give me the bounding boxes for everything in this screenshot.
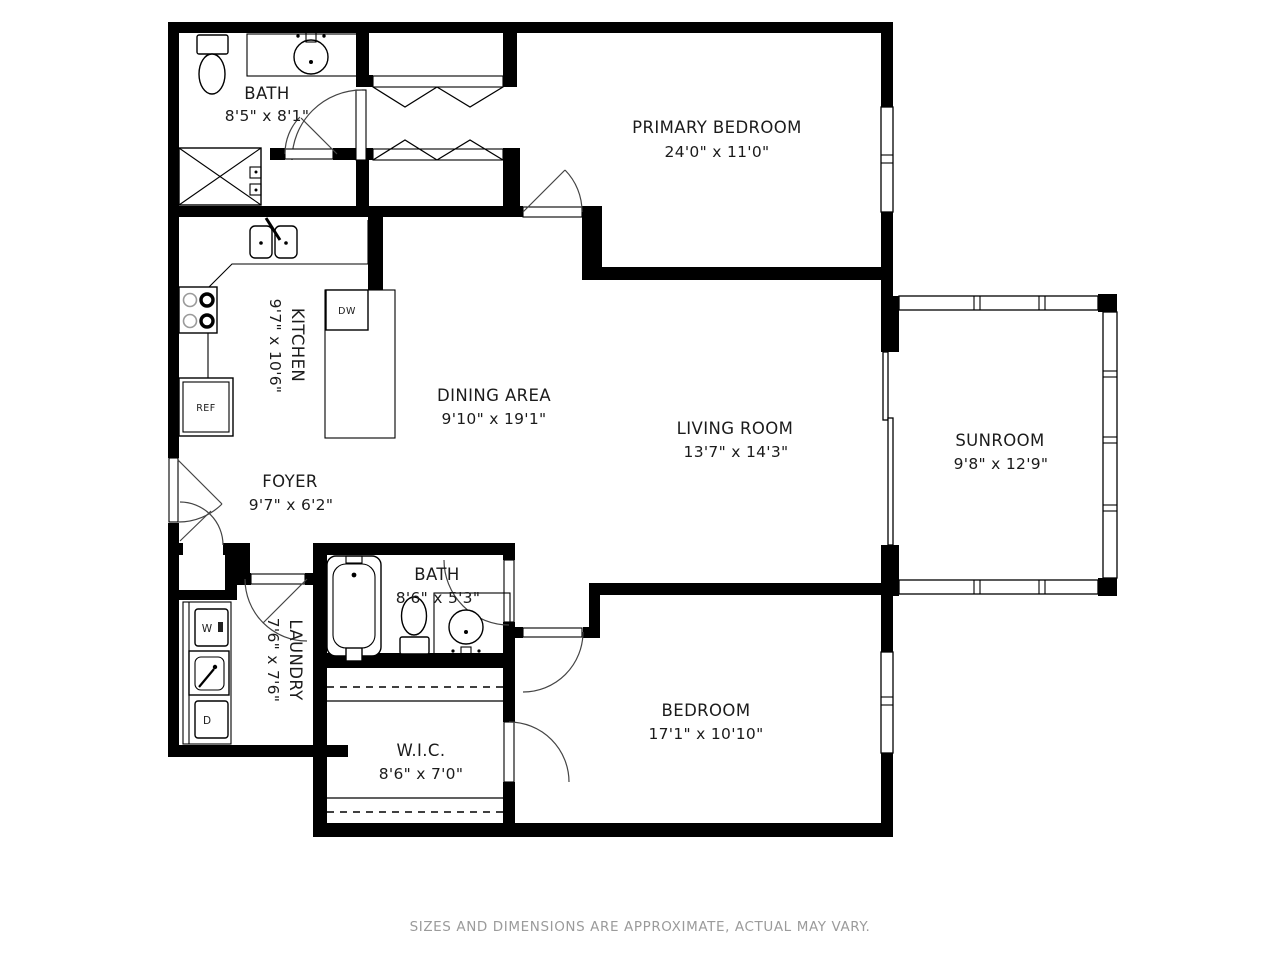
wall-segment <box>881 22 893 107</box>
wall-segment <box>503 638 515 722</box>
wall-segment <box>583 627 600 638</box>
wall-segment <box>503 543 515 560</box>
refrigerator: REF <box>179 378 233 436</box>
room-dims: 9'10" x 19'1" <box>442 410 547 428</box>
wall-segment <box>313 543 515 555</box>
sunroom-window-band-right <box>1103 312 1117 578</box>
shower <box>179 148 261 205</box>
washer-label: W <box>202 623 213 635</box>
room-name: BATH <box>414 565 459 584</box>
room-name: W.I.C. <box>397 741 446 760</box>
kitchen-sink <box>250 218 297 258</box>
floor-plan-page: DW REF <box>0 0 1280 960</box>
room-name: LIVING ROOM <box>677 419 794 438</box>
room-name: SUNROOM <box>955 431 1044 450</box>
room-label-wic: W.I.C. 8'6" x 7'0" <box>379 741 464 783</box>
wall-segment <box>168 590 237 600</box>
wall-segment <box>313 543 327 835</box>
stove <box>179 287 217 333</box>
washer: W <box>195 609 228 646</box>
bedroom-window <box>881 652 893 753</box>
bedroom-door <box>523 628 583 692</box>
primary-bedroom-door <box>523 170 582 217</box>
room-label-foyer: FOYER 9'7" x 6'2" <box>249 472 334 514</box>
room-dims: 13'7" x 14'3" <box>684 443 789 461</box>
room-dims: 9'7" x 10'6" <box>266 299 284 394</box>
toilet-icon <box>197 35 228 94</box>
wall-segment <box>503 33 517 87</box>
wall-segment <box>168 22 179 458</box>
primary-bedroom-window <box>881 107 893 212</box>
sliding-door <box>883 352 893 545</box>
room-label-bedroom: BEDROOM 17'1" x 10'10" <box>648 701 763 743</box>
room-dims: 8'6" x 7'0" <box>379 765 464 783</box>
room-name: DINING AREA <box>437 386 551 405</box>
room-label-kitchen: KITCHEN 9'7" x 10'6" <box>266 299 307 394</box>
wic-door <box>504 722 569 782</box>
wall-segment <box>368 217 383 290</box>
room-name: LAUNDRY <box>286 619 305 701</box>
room-name: PRIMARY BEDROOM <box>632 118 802 137</box>
wall-segment <box>313 823 893 837</box>
room-dims: 8'6" x 5'3" <box>396 589 481 607</box>
room-label-dining-area: DINING AREA 9'10" x 19'1" <box>437 386 551 428</box>
bifold-doors-top <box>373 87 503 107</box>
kitchen-fixtures: DW REF <box>179 218 395 438</box>
wall-segment <box>881 578 899 596</box>
dryer: D <box>195 701 228 738</box>
wall-segment <box>592 267 893 280</box>
wall-segment <box>270 148 285 160</box>
room-dims: 9'7" x 6'2" <box>249 496 334 514</box>
closet-track <box>373 149 503 160</box>
vanity-sink <box>247 29 357 76</box>
room-name: KITCHEN <box>288 308 307 382</box>
hall-closets <box>373 76 503 160</box>
wall-segment <box>1098 294 1117 312</box>
room-label-living-room: LIVING ROOM 13'7" x 14'3" <box>677 419 794 461</box>
room-name: BATH <box>244 84 289 103</box>
disclaimer-text: SIZES AND DIMENSIONS ARE APPROXIMATE, AC… <box>410 919 871 935</box>
room-label-sunroom: SUNROOM 9'8" x 12'9" <box>954 431 1049 473</box>
room-label-laundry: LAUNDRY 7'6" x 7'6" <box>264 618 305 703</box>
walls <box>168 22 1117 837</box>
room-dims: 17'1" x 10'10" <box>648 725 763 743</box>
entry-door <box>169 458 222 522</box>
wall-segment <box>168 22 893 33</box>
room-name: BEDROOM <box>662 701 751 720</box>
wall-segment <box>1098 578 1117 596</box>
refrigerator-label: REF <box>196 403 216 414</box>
wall-segment <box>503 782 515 823</box>
room-label-primary-bedroom: PRIMARY BEDROOM 24'0" x 11'0" <box>632 118 802 161</box>
room-label-bath-1: BATH 8'5" x 8'1" <box>225 84 310 125</box>
dryer-label: D <box>203 715 211 727</box>
wall-segment <box>243 573 251 585</box>
wall-segment <box>881 592 893 652</box>
wall-segment <box>168 523 179 757</box>
windows <box>881 107 1117 753</box>
laundry-sink <box>189 651 229 695</box>
room-dims: 8'5" x 8'1" <box>225 107 310 125</box>
wall-segment <box>168 206 523 217</box>
room-label-bath-2: BATH 8'6" x 5'3" <box>396 565 481 607</box>
room-labels: BATH 8'5" x 8'1" PRIMARY BEDROOM 24'0" x… <box>225 84 1049 783</box>
wall-segment <box>881 753 893 837</box>
wall-segment <box>881 296 899 352</box>
wall-segment <box>356 75 373 87</box>
laundry-fixtures: W D <box>183 602 231 744</box>
sunroom-window-band-bottom <box>899 580 1098 594</box>
dishwasher-label: DW <box>338 306 356 317</box>
floor-plan: DW REF <box>0 0 1280 960</box>
closet-track <box>373 76 503 87</box>
room-dims: 24'0" x 11'0" <box>665 143 770 161</box>
bathtub <box>327 556 381 661</box>
room-dims: 9'8" x 12'9" <box>954 455 1049 473</box>
wall-segment <box>168 543 183 555</box>
room-name: FOYER <box>262 472 318 491</box>
sunroom-window-band-top <box>899 296 1098 310</box>
wall-segment <box>589 583 893 595</box>
room-dims: 7'6" x 7'6" <box>264 618 282 703</box>
